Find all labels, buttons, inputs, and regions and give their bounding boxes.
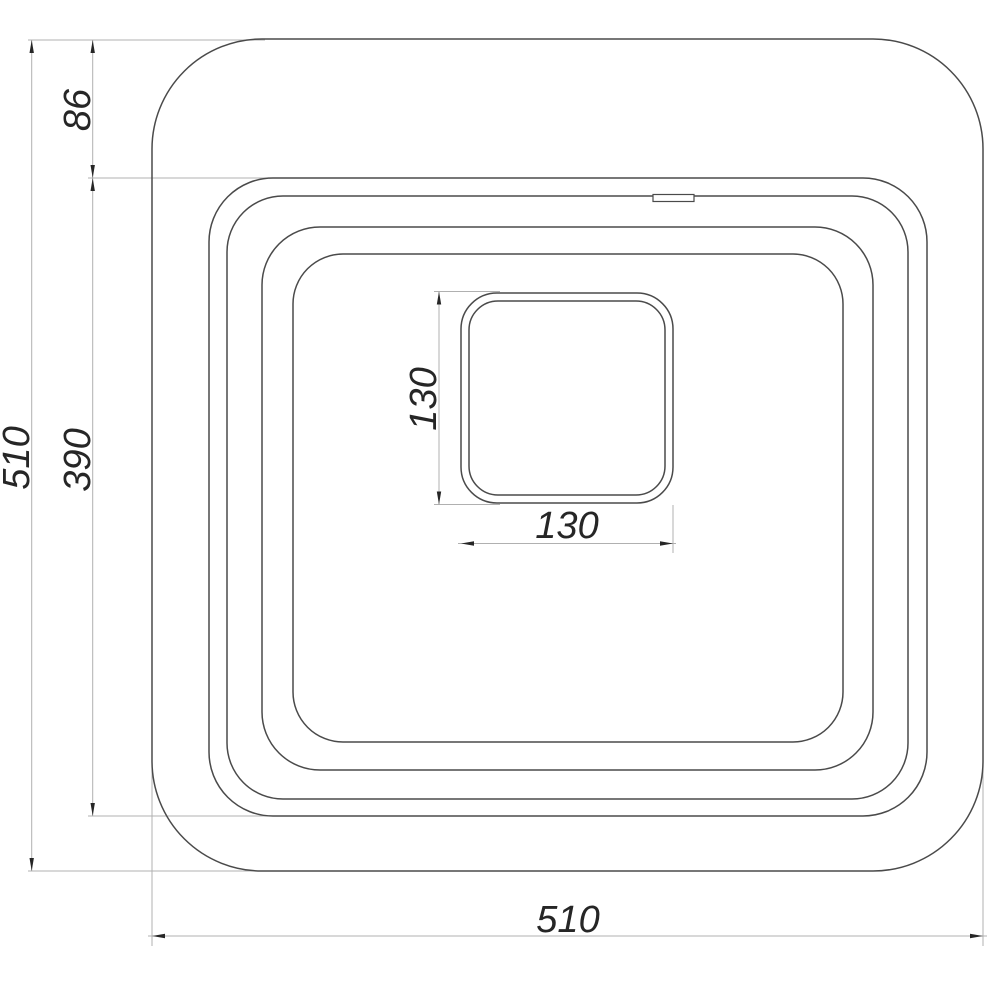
dim-label-overall-height: 510 [0, 426, 38, 489]
extension-lines [28, 40, 983, 946]
dim-label-drain-height: 130 [403, 367, 445, 430]
dim-label-bowl-depth: 390 [57, 428, 99, 491]
arrow-overall-height-top [30, 40, 34, 53]
arrow-bowl-bottom [91, 803, 95, 816]
arrow-drain-height-bottom [437, 492, 441, 505]
sink-outer-edge [152, 39, 983, 871]
drain-recess-inner-edge [469, 301, 665, 495]
bowl-bottom-edge [293, 254, 843, 742]
technical-drawing-canvas: 510 86 390 130 130 510 [0, 0, 1000, 1000]
dim-label-deck-depth: 86 [57, 88, 99, 131]
arrow-drain-width-left [461, 541, 474, 545]
arrow-deck-top [91, 40, 95, 53]
arrow-deck-bottom [91, 165, 95, 178]
arrow-drain-height-top [437, 292, 441, 305]
drain-recess-outer-edge [461, 293, 673, 503]
bowl-rim-outer-edge [209, 178, 927, 816]
dim-label-overall-width: 510 [536, 899, 599, 941]
sink-outlines [152, 39, 983, 871]
overflow-slot [653, 195, 694, 202]
sink-dimension-drawing: 510 86 390 130 130 510 [0, 0, 1000, 1000]
dim-label-drain-width: 130 [535, 505, 598, 547]
arrow-overall-width-left [152, 934, 165, 938]
bowl-slope-contour [262, 227, 873, 770]
bowl-rim-inner-edge [227, 196, 908, 799]
dimension-arrows [30, 40, 984, 938]
arrow-overall-height-bottom [30, 858, 34, 871]
dimension-labels: 510 86 390 130 130 510 [0, 88, 600, 941]
arrow-drain-width-right [660, 541, 673, 545]
arrow-bowl-top [91, 178, 95, 191]
arrow-overall-width-right [970, 934, 983, 938]
